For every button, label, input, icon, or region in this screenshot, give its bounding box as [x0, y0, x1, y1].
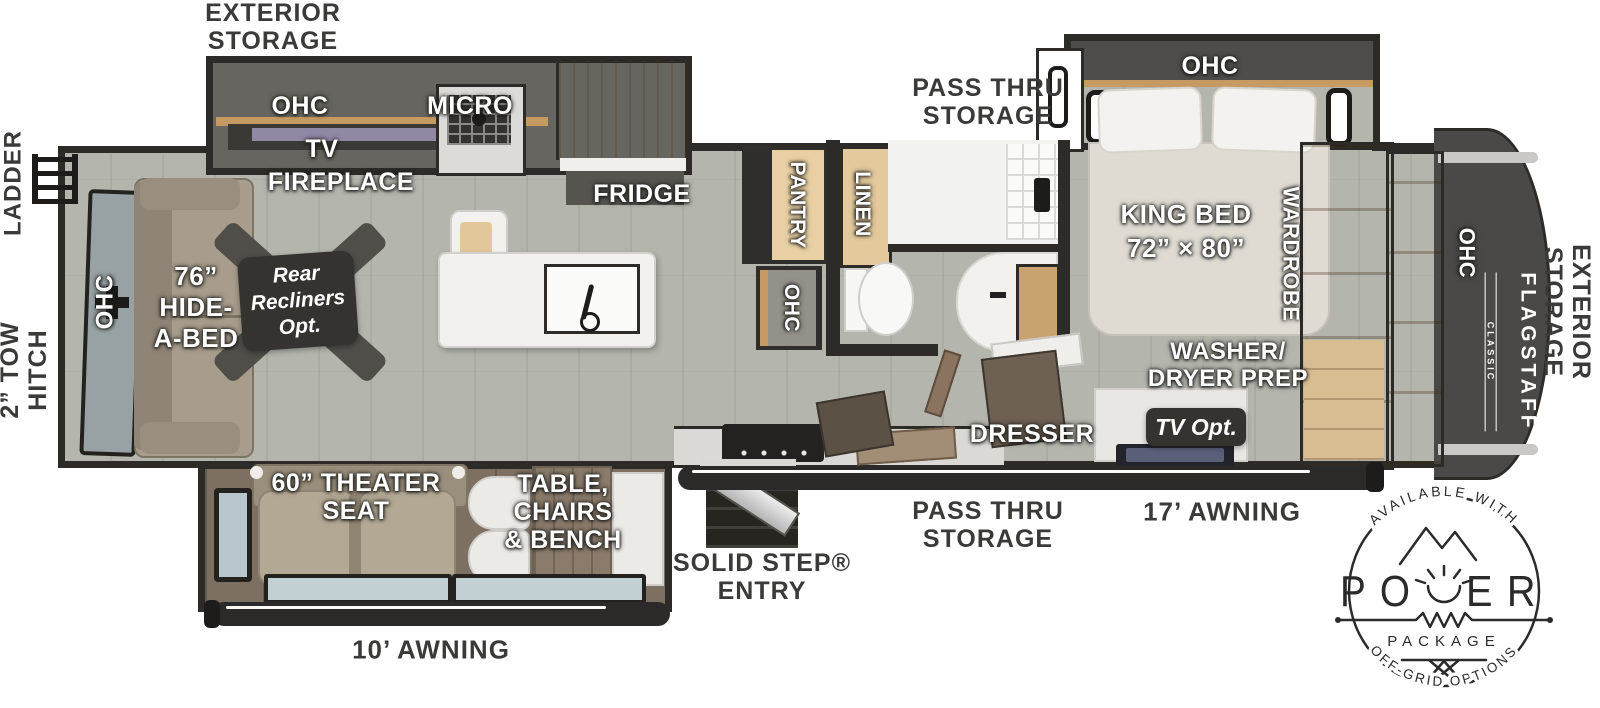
label-solid-step: SOLID STEP® ENTRY [673, 549, 851, 605]
sofa-armrest-bottom [140, 422, 240, 454]
label-linen: LINEN [850, 171, 874, 237]
bath-wall-left [826, 140, 840, 354]
label-pantry: PANTRY [785, 162, 809, 249]
front-cap-stripe-bottom [1438, 444, 1538, 455]
tv-optional-screen [1126, 448, 1224, 462]
tv-opt-label: TV Opt. [1155, 414, 1237, 441]
label-pass-thru-top: PASS THRU STORAGE [912, 74, 1064, 130]
badge-package: PACKAGE [1387, 633, 1500, 650]
label-awning-10: 10’ AWNING [352, 635, 510, 664]
label-exterior-storage-top: EXTERIOR STORAGE [205, 0, 341, 55]
rear-recliners-badge: Rear Recliners Opt. [237, 250, 359, 352]
label-wardrobe: WARDROBE [1278, 187, 1303, 322]
awning-17-highlight [692, 470, 1310, 473]
label-washer-dryer: WASHER/ DRYER PREP [1148, 339, 1308, 393]
badge-arc-top-text: AVAILABLE WITH [1366, 483, 1523, 528]
label-awning-17: 17’ AWNING [1143, 497, 1301, 526]
bedroom-window-right [1326, 88, 1352, 146]
cupholder-right [452, 466, 465, 479]
bath-wall-right [1058, 140, 1070, 354]
rule-dot-left [1335, 617, 1341, 623]
bath-wall-bottom-left [826, 344, 938, 356]
label-dresser: DRESSER [970, 420, 1094, 448]
label-tv: TV [306, 135, 339, 163]
bed-pillow-left [1097, 86, 1203, 154]
washer-dryer-cabinet [1304, 340, 1384, 460]
sun-icon-arc [1428, 586, 1460, 602]
label-tow-hitch: 2” TOW HITCH [0, 321, 52, 418]
fridge-front-trim [560, 158, 686, 171]
label-fridge: FRIDGE [593, 180, 690, 208]
shower-tile-wall [1006, 144, 1058, 240]
label-micro: MICRO [427, 92, 513, 120]
ohc-pantry-shelf [760, 270, 768, 346]
rule-dot-right [1547, 617, 1553, 623]
fridge-cabinet [556, 60, 689, 160]
ladder-icon [32, 154, 78, 204]
vanity-mirror [1016, 264, 1060, 344]
entry-door-panel [816, 390, 895, 457]
brand-flagstaff: FLAGSTAFF [1516, 272, 1540, 431]
sun-icon-rays [1416, 566, 1472, 583]
label-ohc-front: OHC [1454, 228, 1479, 278]
label-pass-thru-bottom: PASS THRU STORAGE [912, 497, 1064, 553]
front-cap-stripe-top [1438, 152, 1538, 163]
label-ladder: LADDER [1, 130, 28, 236]
label-king-bed: KING BED 72” × 80” [1120, 198, 1251, 266]
tv-opt-badge: TV Opt. [1146, 408, 1246, 446]
badge-power-left: PO [1340, 567, 1424, 616]
sofa-armrest-top [140, 178, 240, 210]
label-theater-seat: 60” THEATER SEAT [272, 469, 441, 525]
badge-power-right: ER [1466, 567, 1550, 616]
slide-window [214, 488, 252, 582]
awning-10-endcap [204, 600, 220, 628]
label-ohc-pantry: OHC [779, 284, 803, 332]
label-table-chairs: TABLE, CHAIRS & BENCH [504, 470, 621, 554]
label-ohc-kitchen: OHC [271, 92, 328, 120]
label-hide-a-bed: 76” HIDE- A-BED [154, 261, 239, 355]
label-exterior-storage-right: EXTERIOR STORAGE [1539, 244, 1595, 380]
wall-top-rear [58, 146, 213, 153]
front-closet-cabinet [1386, 151, 1444, 467]
slide-floor-mat-left [264, 574, 452, 604]
toilet-bowl [858, 262, 914, 336]
mountains-icon [1400, 528, 1476, 564]
shower-fixture [1034, 178, 1050, 212]
svg-text:AVAILABLE WITH: AVAILABLE WITH [1366, 483, 1523, 528]
brand-classic: CLASSIC [1484, 272, 1496, 431]
power-package-badge: AVAILABLE WITH OFF-GRID OPTIONS PO ER PA… [1324, 474, 1564, 708]
slide-floor-mat-right [452, 574, 646, 604]
vanity-faucet [990, 292, 1006, 298]
cooktop-knobs [734, 450, 814, 456]
cupholder-left [250, 466, 263, 479]
sink-faucet-base [580, 312, 600, 332]
label-ohc-bedroom: OHC [1181, 52, 1238, 80]
cooktop [722, 424, 824, 462]
awning-10-highlight [226, 606, 606, 609]
rear-recliners-label: Rear Recliners Opt. [248, 258, 348, 343]
floorplan-diagram: FLAGSTAFF CLASSIC Rear Recliners Opt. [0, 0, 1600, 708]
island-stool-seat [460, 222, 492, 256]
label-ohc-rear: OHC [93, 275, 120, 330]
label-fireplace: FIREPLACE [268, 168, 414, 196]
